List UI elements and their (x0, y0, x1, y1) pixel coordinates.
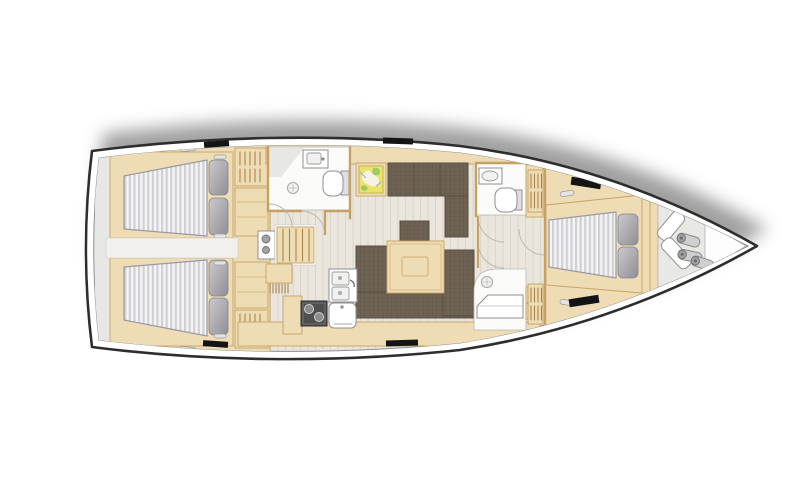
burner (305, 305, 314, 314)
pillow (209, 198, 228, 235)
locker-handle (214, 234, 226, 238)
nav-station (356, 163, 386, 196)
cabinet (235, 262, 268, 308)
engine-dial (262, 235, 270, 243)
toilet-bowl (495, 188, 517, 212)
stove (301, 301, 327, 326)
engine-dial (263, 247, 270, 254)
aft-cabin-starboard (110, 258, 233, 353)
settee-top-return (445, 196, 468, 237)
cabinet (235, 188, 268, 236)
deck-hatch (386, 339, 418, 346)
shower-seat (477, 295, 523, 318)
cabinet-fringe (270, 284, 288, 293)
oven-knob (340, 305, 344, 309)
washbasin (482, 171, 498, 181)
hanging-locker (528, 284, 543, 324)
yacht-floorplan-canvas (0, 0, 810, 500)
v-berth-mattress (549, 212, 616, 278)
faucet (321, 157, 324, 160)
floorplan-svg (0, 0, 810, 500)
hanging-locker (528, 170, 543, 212)
locker-handle (214, 261, 226, 265)
locker-handle (214, 155, 226, 159)
galley-counter (283, 296, 302, 334)
pillow (209, 260, 228, 296)
under-step-cabinet (266, 264, 292, 283)
centre-seat (400, 221, 429, 243)
pillow (209, 298, 228, 335)
pillow (618, 214, 638, 245)
aft-cabin-port (110, 145, 233, 238)
sink-drain (338, 276, 342, 280)
toilet-bowl (323, 171, 343, 196)
pillow (618, 247, 638, 278)
settee-right (443, 250, 474, 316)
deck-hatch (383, 137, 413, 144)
saloon-table (387, 241, 444, 293)
washbasin (307, 153, 321, 164)
bow-bulkhead (650, 198, 658, 298)
burner (315, 313, 324, 322)
pillow (209, 160, 228, 195)
locker-handle (214, 334, 226, 338)
aft-passage (106, 238, 238, 258)
sink-drain (338, 291, 342, 295)
settee-top (388, 163, 468, 196)
